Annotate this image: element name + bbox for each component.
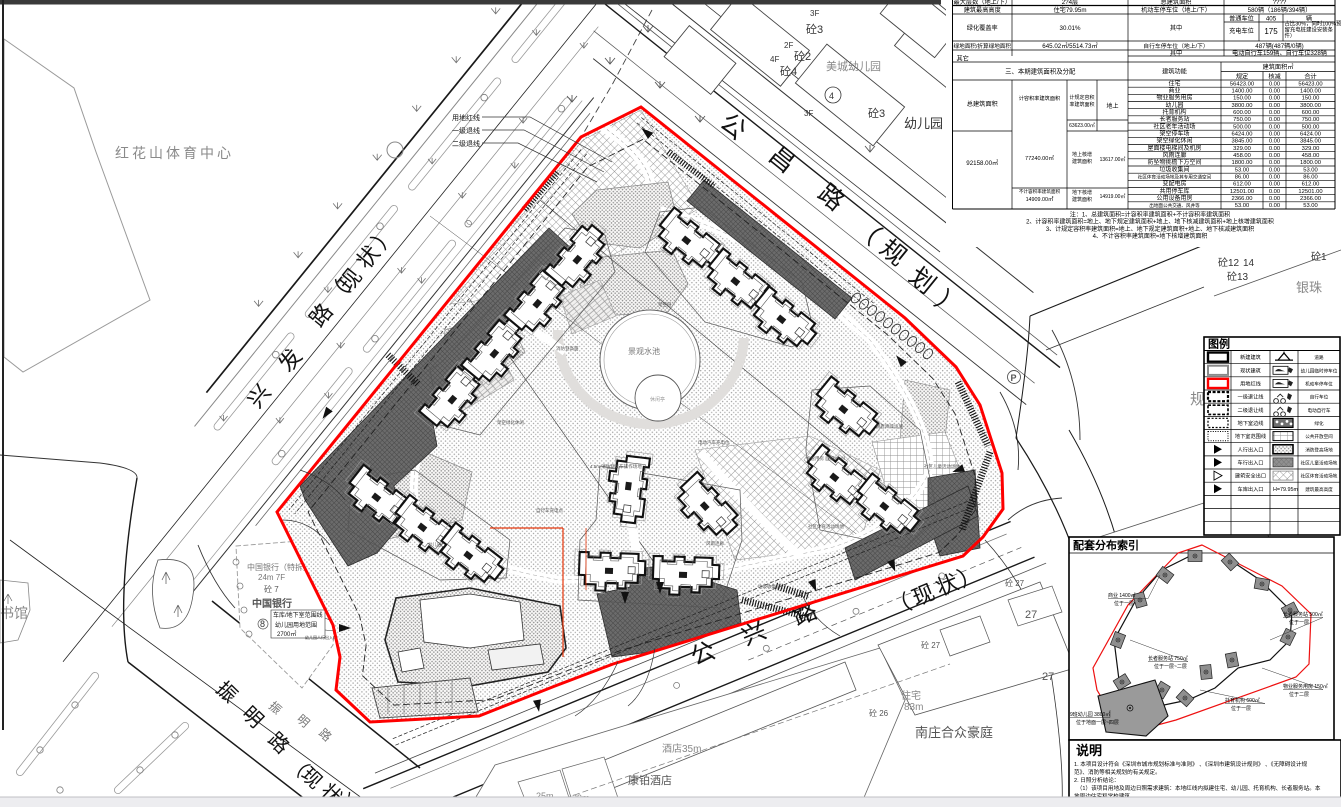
svg-text:地下室边线: 地下室边线: [1238, 419, 1264, 427]
svg-text:12501.00: 12501.00: [1298, 189, 1322, 195]
svg-text:商业: 商业: [1168, 86, 1180, 94]
svg-text:占比30%，同时100%预: 占比30%，同时100%预: [1285, 20, 1341, 28]
svg-text:0.00: 0.00: [1269, 103, 1280, 109]
svg-text:车库出入口: 车库出入口: [1238, 485, 1264, 493]
svg-text:1800.00: 1800.00: [1300, 160, 1321, 166]
svg-text:一级退线: 一级退线: [452, 126, 480, 135]
svg-text:3F: 3F: [804, 109, 813, 118]
svg-text:砼1: 砼1: [1311, 250, 1327, 263]
svg-text:405: 405: [1266, 16, 1277, 23]
svg-text:电动自行车159辆、自行车位328辆: 电动自行车159辆、自行车位328辆: [1232, 49, 1327, 57]
svg-text:架空停车场: 架空停车场: [1159, 129, 1189, 137]
svg-text:书馆: 书馆: [0, 605, 28, 621]
svg-text:0.00: 0.00: [1269, 196, 1280, 202]
svg-text:位于一层: 位于一层: [1231, 705, 1251, 712]
svg-text:4、不计容积率建筑面积=地下核增建筑面积: 4、不计容积率建筑面积=地下核增建筑面积: [1093, 232, 1208, 240]
svg-text:住宅: 住宅: [901, 689, 921, 702]
svg-text:出地面公共交通、风井等: 出地面公共交通、风井等: [1149, 202, 1200, 209]
svg-text:2700㎡: 2700㎡: [277, 630, 296, 638]
svg-text:景观水池: 景观水池: [628, 346, 660, 356]
svg-text:612.00: 612.00: [1233, 182, 1251, 188]
svg-text:普通车位: 普通车位: [1229, 15, 1254, 23]
svg-text:0.00: 0.00: [1269, 160, 1280, 166]
svg-text:共用停车库: 共用停车库: [1159, 187, 1189, 195]
svg-text:0.00: 0.00: [1269, 203, 1280, 209]
svg-text:配套分布索引: 配套分布索引: [1073, 538, 1139, 552]
svg-text:53.00: 53.00: [1303, 203, 1318, 209]
svg-text:2F: 2F: [784, 41, 793, 50]
svg-text:隔音降噪设施: 隔音降噪设施: [876, 423, 903, 430]
svg-text:一级退让线: 一级退让线: [1238, 393, 1264, 401]
svg-text:新建建筑: 新建建筑: [1240, 353, 1262, 361]
svg-text:建筑最高高度: 建筑最高高度: [964, 6, 1001, 14]
svg-text:2. 日照分析结论：: 2. 日照分析结论：: [1074, 776, 1119, 784]
svg-text:架空绿化休闲: 架空绿化休闲: [497, 419, 524, 426]
svg-text:0.00: 0.00: [1269, 124, 1280, 130]
svg-text:公共开放空间: 公共开放空间: [1305, 433, 1333, 440]
svg-text:垃圾收集间: 垃圾收集间: [758, 583, 781, 590]
svg-text:487辆(487辆/0辆): 487辆(487辆/0辆): [1255, 42, 1304, 50]
svg-text:0.00: 0.00: [1269, 174, 1280, 180]
svg-text:92158.00㎡: 92158.00㎡: [966, 159, 999, 167]
svg-text:0.00: 0.00: [1269, 139, 1280, 145]
svg-text:83m: 83m: [904, 702, 923, 713]
svg-text:用地红线: 用地红线: [452, 113, 480, 122]
svg-text:防坠物挑檐下方空间: 防坠物挑檐下方空间: [1147, 158, 1201, 166]
svg-text:9班幼儿园 3800㎡: 9班幼儿园 3800㎡: [1070, 711, 1110, 718]
svg-text:1400.00: 1400.00: [1232, 88, 1253, 94]
svg-text:车行出入口: 车行出入口: [1238, 458, 1264, 466]
svg-text:消防登高面: 消防登高面: [556, 345, 579, 352]
svg-text:其中: 其中: [1170, 49, 1182, 57]
svg-text:物管用房 面积2-6㎡: 物管用房 面积2-6㎡: [806, 455, 846, 462]
svg-text:社区体育活动场地及其专用交通空间: 社区体育活动场地及其专用交通空间: [1138, 173, 1212, 180]
svg-text:商业 1400㎡: 商业 1400㎡: [1108, 592, 1136, 599]
svg-text:????: ????: [1273, 0, 1287, 6]
svg-text:核减: 核减: [1268, 73, 1280, 81]
svg-text:位于地面一层~四层: 位于地面一层~四层: [1076, 719, 1119, 726]
svg-text:公用设备用房: 公用设备用房: [1156, 194, 1192, 202]
svg-text:2?4层: 2?4层: [1062, 0, 1079, 6]
svg-text:绿化: 绿化: [1314, 420, 1324, 427]
svg-text:计容积率建筑面积: 计容积率建筑面积: [1019, 94, 1061, 102]
svg-text:86.00: 86.00: [1303, 174, 1318, 180]
svg-text:750.00: 750.00: [1233, 117, 1251, 123]
svg-text:其它: 其它: [957, 55, 969, 63]
svg-text:图例: 图例: [1208, 337, 1230, 351]
svg-text:社区体育活动场地: 社区体育活动场地: [1301, 473, 1338, 480]
svg-text:长者服务站: 长者服务站: [1159, 115, 1189, 123]
svg-text:道路: 道路: [1314, 354, 1324, 361]
svg-text:变配电房: 变配电房: [1162, 180, 1186, 188]
svg-text:砼 26: 砼 26: [869, 708, 889, 718]
svg-text:14919.00㎡: 14919.00㎡: [1100, 193, 1126, 200]
svg-text:56423.00: 56423.00: [1298, 81, 1322, 87]
svg-text:458.00: 458.00: [1233, 153, 1251, 159]
svg-text:3、计规定容积率建筑面积=地上、地下规定建筑面积+地上、地下: 3、计规定容积率建筑面积=地上、地下规定建筑面积+地上、地下核减建筑面积: [1046, 225, 1254, 233]
svg-text:6424.00: 6424.00: [1300, 131, 1321, 137]
svg-text:红花山体育中心: 红花山体育中心: [115, 145, 234, 161]
svg-text:27: 27: [1042, 671, 1054, 683]
svg-text:幼儿园: 幼儿园: [1165, 101, 1183, 109]
svg-text:0.00: 0.00: [1269, 131, 1280, 137]
svg-text:580辆（186辆/394辆）: 580辆（186辆/394辆）: [1248, 6, 1312, 14]
svg-text:自行车充电点: 自行车充电点: [536, 507, 563, 514]
svg-text:地上核增: 地上核增: [1072, 151, 1092, 158]
svg-text:物业服务用房: 物业服务用房: [1156, 94, 1192, 102]
svg-text:0.00: 0.00: [1269, 110, 1280, 116]
svg-text:现状建筑: 现状建筑: [1240, 366, 1262, 374]
svg-text:2366.00: 2366.00: [1232, 196, 1253, 202]
svg-text:率建筑面积: 率建筑面积: [1069, 101, 1094, 108]
svg-text:0.00: 0.00: [1269, 88, 1280, 94]
svg-text:53.00: 53.00: [1235, 203, 1250, 209]
svg-text:地下核增: 地下核增: [1072, 189, 1092, 196]
svg-text:电动汽车充电位: 电动汽车充电位: [698, 439, 730, 446]
svg-text:329.00: 329.00: [1233, 146, 1251, 152]
svg-text:13617.00㎡: 13617.00㎡: [1100, 156, 1126, 163]
svg-text:自行车位: 自行车位: [1310, 394, 1329, 401]
svg-text:二级退线: 二级退线: [452, 139, 480, 148]
svg-text:56423.00: 56423.00: [1230, 81, 1254, 87]
svg-text:砼12: 砼12: [1218, 256, 1240, 269]
svg-text:注：1、总建筑面积=计容积率建筑面积+不计容积率建筑面积: 注：1、总建筑面积=计容积率建筑面积+不计容积率建筑面积: [1070, 211, 1230, 219]
svg-text:30.01%: 30.01%: [1060, 25, 1081, 32]
svg-text:6424.00: 6424.00: [1232, 131, 1253, 137]
svg-text:砼 27: 砼 27: [1005, 578, 1025, 588]
svg-text:0.00: 0.00: [1269, 153, 1280, 159]
svg-text:63623.00㎡: 63623.00㎡: [1069, 122, 1095, 129]
svg-text:P: P: [1011, 373, 1017, 383]
svg-text:1400.00: 1400.00: [1300, 88, 1321, 94]
svg-text:垃圾收集间: 垃圾收集间: [1159, 165, 1189, 173]
svg-text:架空绿化休闲: 架空绿化休闲: [1156, 137, 1192, 145]
svg-text:14: 14: [1243, 258, 1255, 269]
svg-text:建筑面积: 建筑面积: [1072, 158, 1092, 165]
svg-text:机动车停车位: 机动车停车位: [1305, 380, 1333, 387]
svg-text:酒店35m: 酒店35m: [662, 742, 701, 755]
svg-text:3F: 3F: [810, 9, 819, 18]
svg-text:康铂酒店: 康铂酒店: [628, 773, 672, 787]
svg-text:社区儿童活动场地: 社区儿童活动场地: [924, 463, 960, 470]
svg-text:托育机构: 托育机构: [1162, 108, 1186, 116]
svg-text:612.00: 612.00: [1302, 182, 1320, 188]
svg-text:1. 本项目设计符合《深圳市城市规划标准与准则》 、《深圳市: 1. 本项目设计符合《深圳市城市规划标准与准则》 、《深圳市建筑设计规则》 、《…: [1074, 760, 1307, 768]
svg-text:建筑功能: 建筑功能: [1162, 68, 1187, 76]
svg-text:0.00: 0.00: [1269, 167, 1280, 173]
svg-text:砼4: 砼4: [780, 65, 797, 78]
svg-text:充电车位: 充电车位: [1229, 27, 1254, 35]
svg-text:0.00: 0.00: [1269, 146, 1280, 152]
svg-text:86.00: 86.00: [1235, 174, 1250, 180]
svg-text:175: 175: [1264, 27, 1278, 36]
svg-text:幼儿园人行出入口: 幼儿园人行出入口: [305, 634, 337, 640]
svg-text:总建筑面积: 总建筑面积: [967, 100, 998, 108]
svg-text:屋面楼电梯间及机房: 屋面楼电梯间及机房: [1147, 144, 1201, 152]
svg-text:规定: 规定: [1236, 73, 1248, 81]
svg-text:500.00: 500.00: [1302, 124, 1320, 130]
svg-text:车库/地下室范围线: 车库/地下室范围线: [273, 611, 323, 619]
svg-text:计规定容积: 计规定容积: [1069, 94, 1094, 101]
svg-text:0.00: 0.00: [1269, 81, 1280, 87]
svg-text:住宅: 住宅: [1168, 79, 1180, 87]
svg-text:H=79.95m: H=79.95m: [1273, 487, 1299, 493]
svg-text:3845.00: 3845.00: [1232, 139, 1253, 145]
svg-text:架空层: 架空层: [658, 301, 672, 308]
svg-text:件）: 件）: [1285, 32, 1296, 40]
svg-text:53.00: 53.00: [1235, 167, 1250, 173]
svg-text:750.00: 750.00: [1302, 117, 1320, 123]
svg-text:风雨连廊: 风雨连廊: [1162, 151, 1186, 159]
svg-text:地下室范围线: 地下室范围线: [1235, 432, 1266, 440]
svg-text:社区儿童活动场地: 社区儿童活动场地: [1301, 459, 1338, 466]
svg-text:用地红线: 用地红线: [1240, 379, 1261, 387]
svg-text:位于一层~二层: 位于一层~二层: [1154, 663, 1187, 670]
svg-text:总建筑面积: 总建筑面积: [1161, 0, 1192, 6]
svg-text:0.00: 0.00: [1269, 182, 1280, 188]
svg-text:托育机构 600㎡: 托育机构 600㎡: [1225, 697, 1260, 704]
svg-text:砼2: 砼2: [794, 50, 811, 63]
svg-text:三、本期建筑面积及分配: 三、本期建筑面积及分配: [1005, 67, 1076, 76]
svg-text:77240.00㎡: 77240.00㎡: [1025, 154, 1054, 162]
svg-text:中国银行: 中国银行: [252, 597, 292, 610]
svg-text:社区老年活动场: 社区老年活动场: [1153, 122, 1195, 130]
svg-text:消防登高场地: 消防登高场地: [1305, 446, 1333, 453]
svg-text:1800.00: 1800.00: [1232, 160, 1253, 166]
svg-text:绿化覆盖率: 绿化覆盖率: [967, 24, 998, 32]
svg-text:位于一层: 位于一层: [1114, 600, 1134, 607]
svg-text:幼儿园: 幼儿园: [428, 541, 442, 548]
svg-text:24m 7F: 24m 7F: [258, 573, 285, 582]
svg-text:不计容积率建筑面积: 不计容积率建筑面积: [1019, 188, 1061, 195]
svg-text:建筑面积㎡: 建筑面积㎡: [1263, 63, 1295, 71]
svg-text:银珠: 银珠: [1296, 280, 1322, 295]
svg-text:砼13: 砼13: [1227, 270, 1249, 283]
svg-text:幼儿园: 幼儿园: [904, 116, 943, 131]
svg-text:其中: 其中: [1170, 24, 1182, 32]
svg-text:3800.00: 3800.00: [1300, 103, 1321, 109]
svg-text:3800.00: 3800.00: [1232, 103, 1253, 109]
svg-text:电动自行车: 电动自行车: [1308, 407, 1331, 414]
svg-text:12501.00: 12501.00: [1230, 189, 1254, 195]
svg-text:4.5m 消防登高车操作场地: 4.5m 消防登高车操作场地: [590, 463, 642, 470]
svg-text:幼儿园临时停车位: 幼儿园临时停车位: [1301, 367, 1338, 374]
svg-text:休闲亭: 休闲亭: [650, 396, 665, 403]
svg-text:美城幼儿园: 美城幼儿园: [826, 60, 881, 73]
svg-text:最大层数（地上/下）: 最大层数（地上/下）: [954, 0, 1011, 6]
svg-text:机动车停车位（地上/下）: 机动车停车位（地上/下）: [1141, 6, 1211, 14]
svg-text:人行出入口: 人行出入口: [1238, 445, 1264, 453]
svg-text:砼3: 砼3: [868, 107, 885, 120]
svg-text:150.00: 150.00: [1302, 96, 1320, 102]
svg-text:0.00: 0.00: [1269, 117, 1280, 123]
svg-text:说明: 说明: [1076, 743, 1102, 758]
svg-text:53.00: 53.00: [1303, 167, 1318, 173]
svg-text:150.00: 150.00: [1233, 96, 1251, 102]
svg-text:地上: 地上: [1106, 102, 1118, 110]
svg-text:砼 27: 砼 27: [921, 640, 941, 650]
svg-text:14909.00㎡: 14909.00㎡: [1026, 195, 1054, 203]
svg-text:合计: 合计: [1304, 73, 1316, 81]
svg-text:4F: 4F: [770, 55, 779, 64]
svg-text:500.00: 500.00: [1233, 124, 1251, 130]
svg-text:砼3: 砼3: [806, 23, 823, 36]
svg-text:范》、消防等相关规划的有关规定。: 范》、消防等相关规划的有关规定。: [1074, 768, 1161, 776]
svg-text:南庄合众豪庭: 南庄合众豪庭: [915, 725, 993, 740]
svg-text:长者服务站 750㎡: 长者服务站 750㎡: [1148, 655, 1188, 662]
svg-text:645.02㎡/5514.73㎡: 645.02㎡/5514.73㎡: [1042, 42, 1098, 50]
svg-text:600.00: 600.00: [1302, 110, 1320, 116]
svg-text:0.00: 0.00: [1269, 189, 1280, 195]
svg-text:3845.00: 3845.00: [1300, 139, 1321, 145]
svg-text:329.00: 329.00: [1302, 146, 1320, 152]
svg-text:留充电桩建设安装条: 留充电桩建设安装条: [1285, 26, 1334, 34]
svg-text:（1）该项目用地及周边日照需求建筑：本地红线内拟建住宅、幼儿: （1）该项目用地及周边日照需求建筑：本地红线内拟建住宅、幼儿园、托育机构、长者服…: [1074, 784, 1321, 792]
svg-text:4: 4: [829, 91, 834, 101]
svg-text:绿地面积/折算绿地面积: 绿地面积/折算绿地面积: [954, 42, 1012, 50]
svg-text:8: 8: [260, 619, 265, 629]
svg-text:2366.00: 2366.00: [1300, 196, 1321, 202]
svg-text:风雨连廊: 风雨连廊: [706, 540, 724, 547]
svg-text:自行车停车位（地上/下）: 自行车停车位（地上/下）: [1143, 42, 1208, 50]
svg-text:长者服务站 500㎡: 长者服务站 500㎡: [1283, 611, 1323, 618]
svg-text:社区体育活动场地: 社区体育活动场地: [808, 523, 844, 530]
svg-text:建筑安全出口: 建筑安全出口: [1235, 472, 1266, 480]
svg-text:建筑面积: 建筑面积: [1072, 196, 1092, 203]
svg-text:砼 7: 砼 7: [264, 584, 279, 594]
svg-text:600.00: 600.00: [1233, 110, 1251, 116]
svg-text:幼儿园用地范围: 幼儿园用地范围: [275, 621, 317, 629]
svg-text:458.00: 458.00: [1302, 153, 1320, 159]
svg-text:住宅79.95m: 住宅79.95m: [1053, 6, 1086, 14]
svg-text:0.00: 0.00: [1269, 96, 1280, 102]
svg-text:位于二层: 位于二层: [1289, 691, 1309, 698]
svg-text:27: 27: [1025, 609, 1037, 621]
svg-text:二级退让线: 二级退让线: [1238, 406, 1264, 414]
svg-text:建筑最高高度: 建筑最高高度: [1305, 486, 1333, 493]
svg-text:2、计容积率建筑面积=地上、地下规定建筑面积+地上、地下核减: 2、计容积率建筑面积=地上、地下规定建筑面积+地上、地下核减建筑面积+地上核增建…: [1026, 218, 1274, 226]
